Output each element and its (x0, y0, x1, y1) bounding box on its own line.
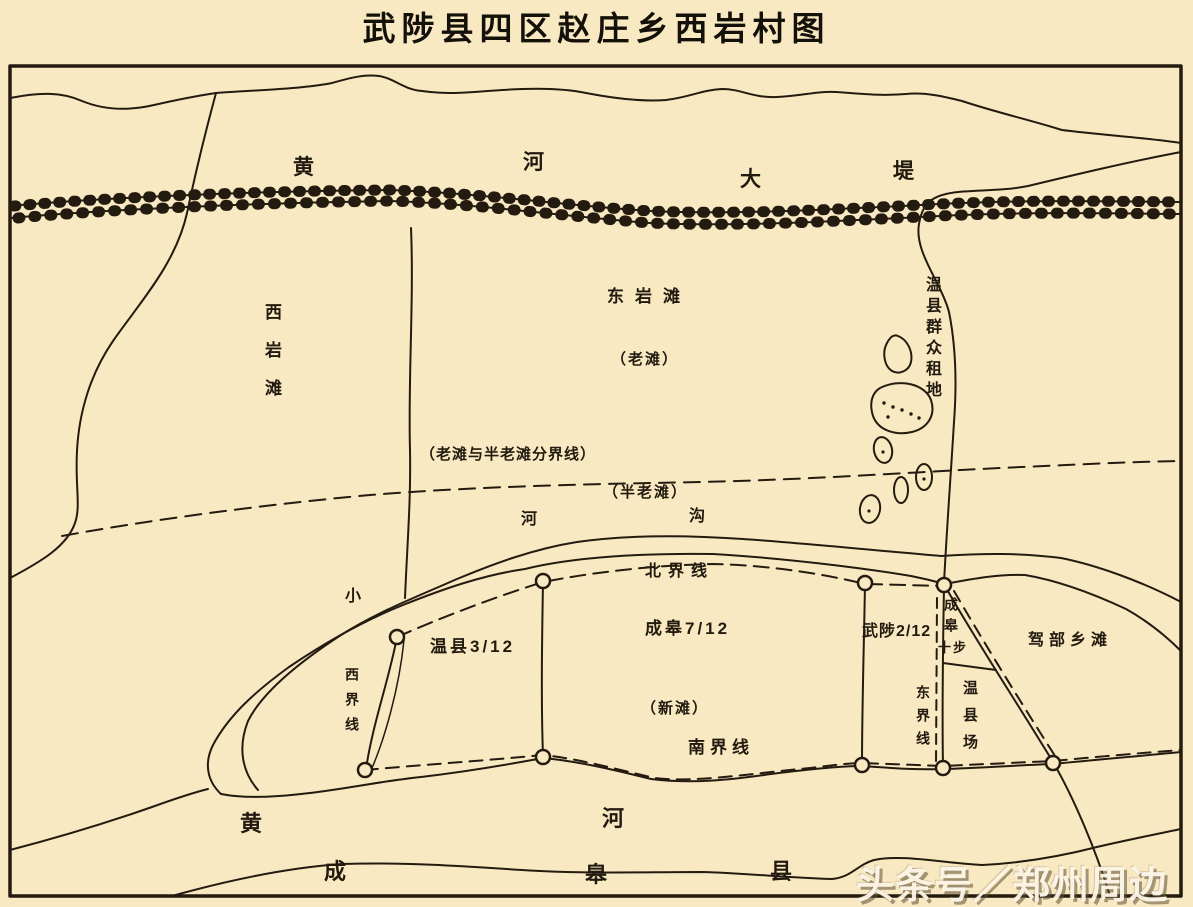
node (536, 750, 550, 764)
parcel-label-wenxian-yard: 温县场 (962, 680, 977, 761)
node (536, 574, 550, 588)
region-label-dongyan-beach: 东岩滩 (607, 288, 691, 305)
map-frame-border (10, 66, 1181, 896)
creek-label-char: 河 (521, 512, 537, 528)
county-label-char: 皋 (585, 864, 607, 886)
creek-label-char: 沟 (689, 509, 705, 525)
parcel-label-sliver-area: 十步 (938, 641, 968, 654)
note-old-beach: （老滩） (611, 352, 679, 367)
dike-label-char: 堤 (893, 161, 914, 182)
dike-label-char: 大 (740, 169, 761, 190)
dike-label-char: 河 (523, 152, 544, 173)
parcel-divider-chenggao-wuzhi (862, 584, 865, 764)
mid-vertical-line (405, 228, 412, 598)
parcel-label-chenggao: 成皋7/12 (645, 620, 730, 637)
county-label-char: 县 (770, 861, 792, 883)
note-semi-old-beach: （半老滩） (603, 485, 688, 500)
map-sheet: 武陟县四区赵庄乡西岩村图 (0, 0, 1193, 907)
north-shore-line (10, 76, 1181, 143)
boundary-label-south: 南界线 (688, 739, 754, 756)
parcel-label-wuzhi: 武陟2/12 (862, 624, 931, 640)
node (858, 576, 872, 590)
boundary-label-east: 东界线 (916, 685, 930, 754)
parcel-label-sliver-name: 成皋 (944, 597, 958, 639)
node (358, 763, 372, 777)
boundary-label-west: 西界线 (345, 667, 359, 742)
river-bank-west (10, 789, 208, 850)
sliver-bottom-line (943, 663, 996, 670)
region-label-jiabu-beach: 驾部乡滩 (1028, 633, 1112, 649)
west-curved-line (12, 93, 216, 577)
creek-label-char: 小 (345, 589, 361, 605)
dike-label-char: 黄 (293, 157, 314, 178)
pond-small-1 (871, 435, 894, 464)
map-linework (0, 0, 1193, 907)
region-label-wenxian-rented-land: 温县群众租地 (923, 276, 939, 402)
west-boundary-line-2 (372, 640, 404, 768)
node (937, 578, 951, 592)
pond-small-3 (894, 477, 908, 503)
river-label-char: 黄 (240, 813, 262, 835)
parcel-label-wenxian: 温县3/12 (430, 638, 515, 655)
river-label-char: 河 (602, 808, 624, 830)
pond-teardrop (884, 335, 911, 372)
county-label-char: 成 (324, 861, 346, 883)
node (936, 761, 950, 775)
region-label-xiyan-beach: 西岩滩 (263, 303, 280, 417)
parcel-divider-wenxian-chenggao (542, 582, 543, 756)
note-beach-boundary: （老滩与半老滩分界线） (420, 447, 596, 462)
boundary-label-north: 北界线 (645, 564, 714, 580)
pond-small-4 (858, 493, 883, 524)
node (855, 758, 869, 772)
node (390, 630, 404, 644)
note-new-beach: （新滩） (641, 701, 709, 716)
pond-small-2 (916, 464, 932, 490)
pond-blobs (858, 335, 933, 524)
watermark: 头条号／郑州周边游 (856, 854, 1193, 907)
node (1046, 756, 1060, 770)
east-boundary-dashed (936, 598, 937, 764)
